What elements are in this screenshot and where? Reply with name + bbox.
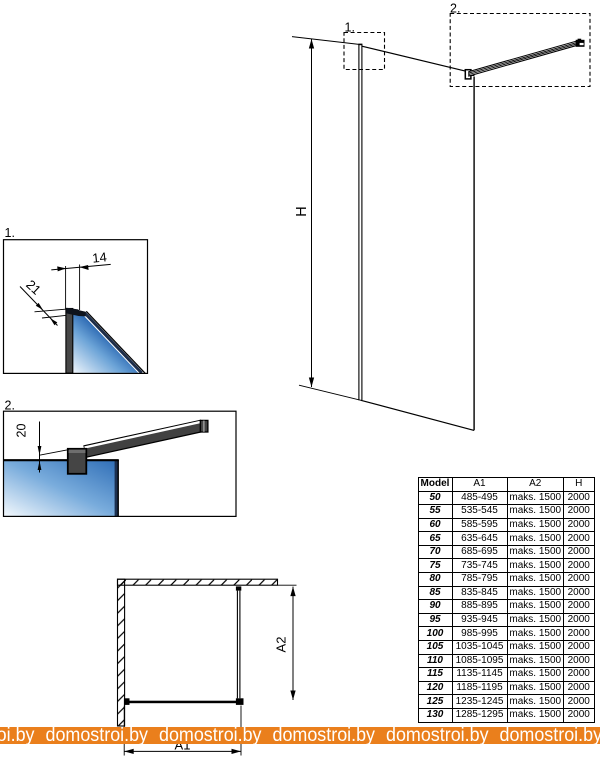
svg-text:14: 14	[92, 249, 108, 265]
svg-text:H: H	[294, 206, 310, 216]
svg-text:2.: 2.	[450, 2, 460, 16]
svg-text:20: 20	[15, 424, 29, 438]
svg-text:A2: A2	[274, 637, 289, 653]
svg-text:1.: 1.	[5, 226, 15, 240]
svg-text:1.: 1.	[345, 21, 355, 35]
svg-text:2.: 2.	[5, 399, 15, 413]
svg-text:21: 21	[23, 277, 44, 298]
